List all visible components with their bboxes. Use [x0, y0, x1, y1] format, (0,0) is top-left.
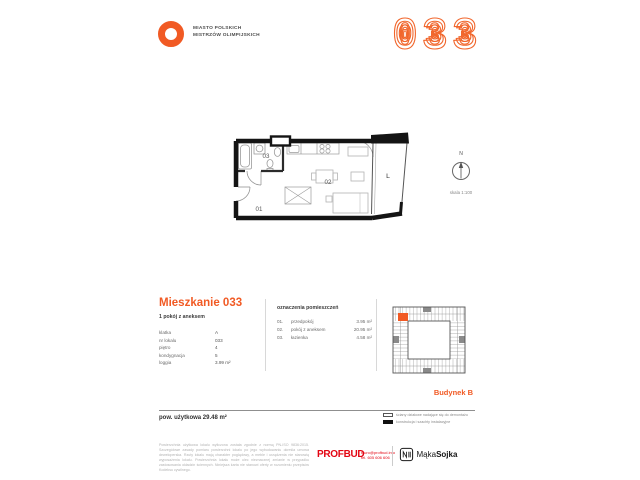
sofa	[348, 147, 368, 156]
brand-name: MIASTO POLSKICH MISTRZÓW OLIMPIJSKICH	[193, 25, 260, 40]
stair-core	[393, 336, 399, 343]
walls-legend: ściany działowe nadające się do demontaż…	[383, 413, 478, 427]
loggia-door	[357, 141, 373, 157]
stair-core	[423, 368, 431, 373]
building-label: Budynek B	[390, 388, 473, 397]
stair-core	[459, 336, 465, 343]
brand-line1: MIASTO POLSKICH	[193, 25, 260, 32]
svg-text:3: 3	[461, 26, 469, 42]
apartment-subtitle: 1 pokój z aneksem	[159, 314, 205, 320]
divider-1	[265, 299, 266, 371]
wall-block-top-right	[371, 133, 409, 144]
footer-divider	[392, 446, 393, 466]
scale-label: skala 1:100	[450, 190, 473, 195]
developer-phone[interactable]: tel. 605 606 606	[361, 455, 395, 460]
bed	[333, 193, 368, 213]
label-room: 02	[325, 179, 332, 186]
stair-core	[423, 307, 431, 312]
highlighted-unit	[398, 313, 408, 321]
summary-rule	[159, 410, 475, 411]
entrance-door	[236, 187, 250, 201]
bathroom-door	[247, 171, 261, 185]
document-page: MIASTO POLSKICH MISTRZÓW OLIMPIJSKICH 0 …	[155, 0, 485, 480]
sink	[274, 148, 280, 157]
spec-row-nr-lokalu: nr lokalu 033	[159, 338, 259, 346]
spec-row-kondygnacja: kondygnacja 5	[159, 353, 259, 361]
brand-logo-icon	[158, 21, 184, 47]
spec-row-pietro: piętro 4	[159, 345, 259, 353]
spec-row-loggia: loggia 3.99 m²	[159, 360, 259, 368]
floor-plan-card: MIASTO POLSKICH MISTRZÓW OLIMPIJSKICH 0 …	[0, 0, 640, 480]
spec-table: klatka A nr lokalu 033 piętro 4 kondygna…	[159, 330, 259, 368]
developer-contact: biuro@profbud.info tel. 605 606 606	[361, 450, 395, 461]
label-hall: 01	[256, 206, 263, 213]
bathroom-fixtures	[239, 143, 281, 171]
unit-number-033: 0 0 0 0 3 3 3 3 3 3 3 3	[391, 8, 479, 60]
bathtub	[241, 145, 250, 167]
floor-plan-drawing: 03 01 02 L	[230, 130, 412, 227]
svg-text:3: 3	[431, 26, 439, 42]
north-label: N	[459, 151, 463, 157]
structural-wall-swatch-icon	[383, 420, 393, 424]
partition-wall-swatch-icon	[383, 413, 393, 417]
toilet	[267, 160, 273, 168]
usable-area-total: pow. użytkowa 29.48 m²	[159, 415, 227, 421]
kitchen-annex	[287, 143, 339, 154]
room-row-03: 03. łazienka 4.58 m²	[277, 335, 372, 340]
svg-text:0: 0	[401, 26, 409, 42]
legend-item-partition: ściany działowe nadające się do demontaż…	[383, 413, 478, 417]
divider-2	[376, 299, 377, 371]
developer-logo: PROFBUD	[317, 449, 364, 460]
spec-row-klatka: klatka A	[159, 330, 259, 338]
architect-logo: MąkaSojka	[399, 447, 457, 462]
rooms-legend-title: oznaczenia pomieszczeń	[277, 305, 338, 311]
brand-line2: MISTRZÓW OLIMPIJSKICH	[193, 32, 260, 39]
building-key-map	[390, 303, 468, 377]
room-furniture	[312, 147, 369, 213]
room-row-01: 01. przedpokój 3.95 m²	[277, 319, 372, 324]
architect-name: MąkaSojka	[417, 450, 458, 459]
label-loggia: L	[386, 173, 390, 180]
apartment-title: Mieszkanie 033	[159, 297, 242, 309]
room-row-02: 02. pokój z aneksem 20.95 m²	[277, 327, 372, 332]
courtyard	[408, 321, 450, 359]
installation-shaft	[271, 137, 290, 146]
compass-and-scale: N skala 1:100	[441, 146, 481, 198]
wardrobe	[285, 187, 311, 204]
legend-item-structure: konstrukcja i szachty instalacyjne	[383, 420, 478, 424]
legal-disclaimer: Powierzchnia użytkowa lokalu wyliczona z…	[159, 443, 309, 472]
label-bathroom: 03	[263, 153, 270, 160]
architect-monogram-icon	[399, 447, 414, 462]
